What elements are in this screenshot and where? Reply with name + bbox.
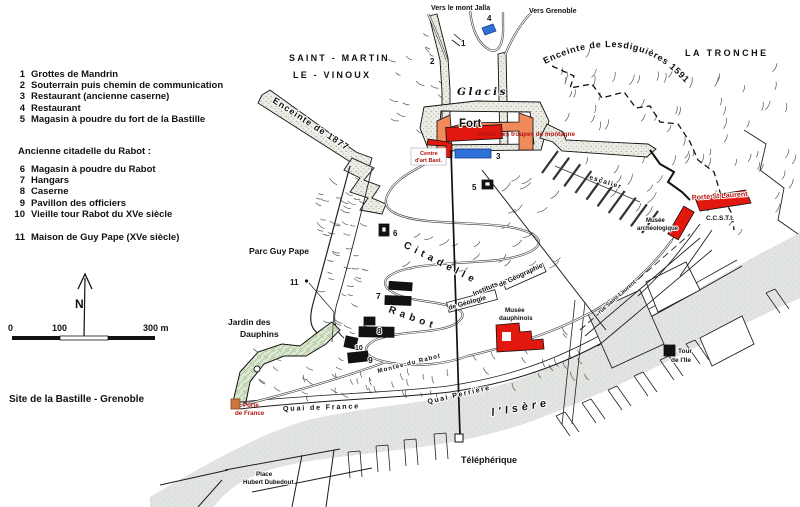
marker-5: 5 (472, 183, 477, 192)
label-jardin-2: Dauphins (240, 329, 279, 339)
label-parc-guy-pape: Parc Guy Pape (249, 246, 309, 256)
legend-row: 3Restaurant (ancienne caserne) (13, 91, 263, 102)
marker-6: 6 (393, 229, 398, 238)
label-musee-dauphinois-2: dauphinois (499, 315, 533, 322)
label-jardin-1: Jardin des (228, 317, 271, 327)
label-centre-art-1: Centre (420, 151, 438, 157)
label-vers-mont-jalla: Vers le mont Jalla (431, 5, 490, 12)
musee-archeologique-building (668, 206, 694, 240)
bastille-map: 0 100 300 m N Vers le mont Jalla Vers Gr… (0, 0, 800, 507)
label-enceinte-1877: Enceinte de 1877 (271, 95, 351, 152)
legend-row: 9Pavillon des officiers (13, 198, 263, 209)
legend-row: 6Magasin à poudre du Rabot (13, 164, 263, 175)
tour-ile-building (664, 345, 675, 356)
marker-3: 3 (496, 152, 501, 161)
scale-bar: 0 100 300 m (8, 323, 169, 340)
scale-300: 300 m (143, 323, 169, 333)
marker-8: 8 (377, 326, 382, 336)
porte-de-france-marker (231, 399, 240, 409)
marker-11: 11 (290, 278, 299, 287)
label-vers-grenoble: Vers Grenoble (529, 8, 577, 15)
label-saint-martin: SAINT - MARTIN (289, 53, 390, 63)
north-arrow: N (75, 274, 92, 336)
label-citadelle: Citadelle (402, 240, 480, 287)
label-fort: Fort (459, 118, 482, 130)
scale-0: 0 (8, 323, 13, 333)
label-musee-dauphinois-1: Musée (505, 307, 525, 314)
marker-10: 10 (355, 345, 363, 352)
label-musee-archeo-1: Musée (646, 218, 665, 224)
marker-4: 4 (487, 14, 492, 23)
label-le-vinoux: LE - VINOUX (293, 70, 371, 80)
label-ccsti: C.C.S.T.I. (706, 215, 734, 222)
label-rabot: Rabot (387, 304, 439, 332)
label-tour-ile-1: Tour (678, 348, 692, 355)
marker-9: 9 (368, 355, 373, 365)
label-porte-france-2: de France (235, 410, 265, 417)
label-glacis: Glacis (457, 86, 508, 98)
legend-section-header: Ancienne citadelle du Rabot : (18, 146, 263, 157)
label-telepherique: Téléphérique (461, 455, 517, 465)
label-enceinte-lesdiguieres: Enceinte de Lesdiguières 1591 (542, 39, 692, 85)
restaurant-3-marker (455, 149, 491, 158)
legend-row: 4Restaurant (13, 103, 263, 114)
map-title: Site de la Bastille - Grenoble (9, 394, 144, 405)
label-musee-archeo-2: archéologique (637, 226, 679, 232)
legend-row: 8Caserne (13, 186, 263, 197)
legend-row: 10Vieille tour Rabot du XVe siècle (13, 209, 263, 220)
label-centre-art-2: d'art Bast. (415, 158, 443, 164)
label-musee-troupes: Musée des troupes de montagne (477, 131, 575, 138)
legend-row: 1Grottes de Mandrin (13, 69, 263, 80)
label-tour-ile-2: de l'Ile (671, 357, 691, 364)
legend-row: 2Souterrain puis chemin de communication (13, 80, 263, 91)
label-la-tronche: LA TRONCHE (685, 48, 769, 58)
marker-7: 7 (376, 291, 381, 301)
label-place-2: Hubert Dubedout (243, 479, 294, 486)
marker-1: 1 (461, 39, 466, 48)
label-quai-de-france: Quai de France (283, 401, 360, 413)
label-porte-france-1: Porte (243, 402, 259, 409)
north-label: N (75, 297, 84, 311)
legend: 1Grottes de Mandrin 2Souterrain puis che… (13, 69, 263, 243)
legend-row: 11Maison de Guy Pape (XVe siècle) (13, 232, 263, 243)
label-place-1: Place (256, 471, 273, 478)
restaurant-4-marker (482, 24, 496, 35)
scale-100: 100 (52, 323, 67, 333)
legend-row: 7Hangars (13, 175, 263, 186)
legend-row: 5Magasin à poudre du fort de la Bastille (13, 114, 263, 125)
marker-2: 2 (430, 57, 435, 66)
